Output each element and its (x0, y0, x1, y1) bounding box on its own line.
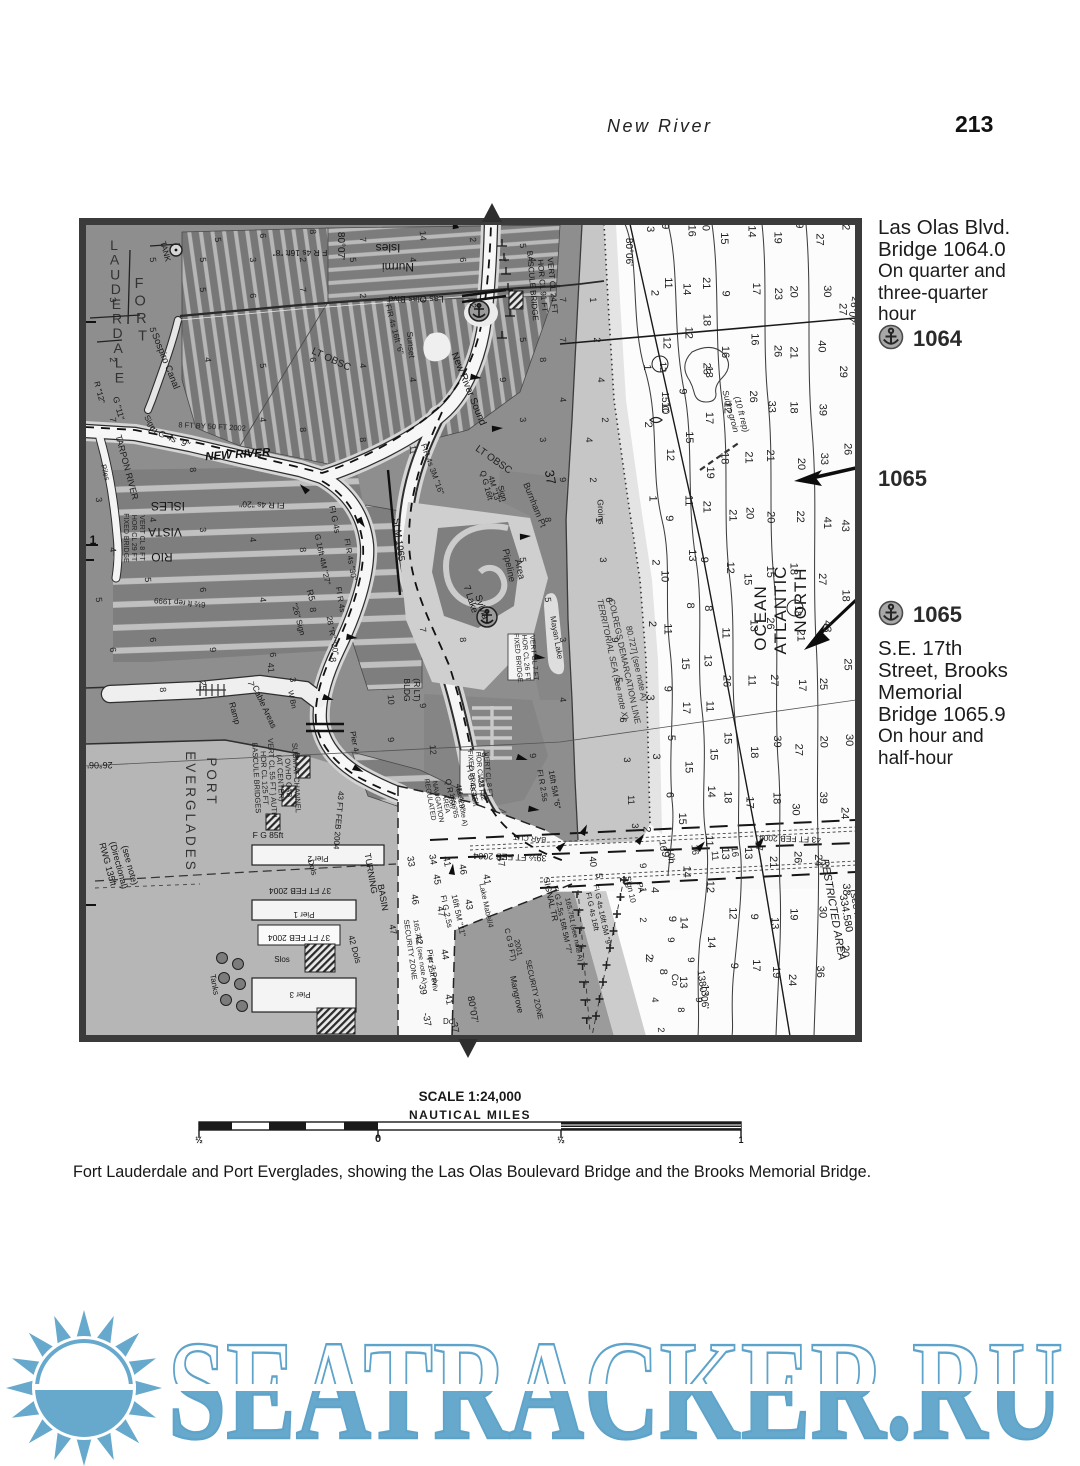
svg-text:4: 4 (558, 397, 568, 403)
svg-text:8: 8 (308, 229, 318, 235)
svg-text:5: 5 (148, 327, 158, 333)
svg-text:A: A (110, 252, 120, 268)
svg-text:2: 2 (641, 826, 653, 832)
svg-text:14: 14 (705, 936, 717, 948)
svg-text:11: 11 (683, 495, 695, 506)
svg-text:Las Olas Blvd: Las Olas Blvd (388, 294, 444, 304)
svg-text:27: 27 (837, 303, 849, 315)
svg-text:29: 29 (837, 366, 849, 378)
svg-text:44: 44 (438, 948, 451, 960)
svg-text:9: 9 (698, 557, 710, 563)
svg-text:16: 16 (657, 840, 669, 851)
svg-text:6: 6 (258, 233, 268, 239)
svg-text:11: 11 (703, 835, 715, 846)
svg-text:9: 9 (661, 686, 673, 692)
svg-text:7: 7 (418, 627, 428, 633)
svg-text:10: 10 (658, 570, 670, 582)
svg-text:4: 4 (358, 363, 368, 369)
svg-text:13: 13 (699, 984, 711, 996)
svg-text:21: 21 (794, 629, 806, 641)
svg-text:14: 14 (705, 786, 717, 798)
svg-text:7: 7 (558, 337, 568, 343)
svg-text:3: 3 (650, 754, 662, 760)
svg-text:5: 5 (198, 257, 208, 263)
svg-text:30: 30 (843, 734, 855, 746)
svg-text:7: 7 (298, 287, 308, 293)
svg-text:26°06': 26°06' (87, 760, 113, 770)
svg-text:18: 18 (788, 563, 800, 575)
svg-text:4: 4 (595, 377, 606, 383)
svg-text:6: 6 (148, 637, 158, 643)
svg-text:33: 33 (766, 401, 778, 413)
svg-text:39: 39 (817, 404, 829, 416)
svg-text:12: 12 (664, 449, 676, 461)
svg-text:27: 27 (813, 233, 825, 245)
svg-text:18: 18 (722, 791, 734, 803)
svg-text:12: 12 (724, 562, 736, 574)
svg-text:14: 14 (745, 225, 757, 237)
svg-text:37: 37 (448, 1021, 461, 1033)
svg-text:26: 26 (772, 345, 784, 357)
svg-text:1: 1 (587, 297, 598, 303)
svg-text:F: F (135, 276, 144, 292)
svg-text:3: 3 (538, 437, 548, 443)
svg-text:4: 4 (203, 357, 213, 363)
svg-text:39: 39 (416, 983, 429, 995)
svg-text:½: ½ (195, 1135, 203, 1145)
svg-text:20: 20 (764, 511, 776, 523)
svg-text:SCALE 1:24,000: SCALE 1:24,000 (419, 1089, 522, 1104)
svg-text:4: 4 (408, 377, 418, 383)
svg-text:47: 47 (494, 855, 507, 867)
svg-text:47: 47 (387, 924, 399, 936)
svg-text:23: 23 (772, 288, 784, 300)
svg-text:1: 1 (738, 1135, 743, 1145)
svg-text:2: 2 (642, 422, 654, 428)
svg-text:F G 85ft: F G 85ft (253, 830, 284, 840)
svg-text:5: 5 (258, 363, 268, 369)
svg-text:2: 2 (587, 477, 598, 483)
svg-text:PORT: PORT (204, 757, 219, 806)
svg-text:19: 19 (771, 231, 783, 243)
svg-text:26: 26 (792, 851, 804, 863)
svg-text:7: 7 (246, 681, 256, 687)
svg-text:80°07': 80°07' (335, 232, 346, 260)
svg-text:5: 5 (94, 597, 104, 603)
svg-text:5: 5 (143, 577, 153, 583)
svg-text:43: 43 (821, 620, 833, 632)
svg-text:3: 3 (108, 297, 118, 303)
svg-text:1: 1 (593, 517, 604, 523)
svg-text:12: 12 (704, 881, 716, 893)
svg-text:9: 9 (498, 377, 508, 383)
svg-text:18: 18 (718, 452, 730, 464)
svg-text:3: 3 (597, 557, 608, 563)
svg-text:21: 21 (767, 856, 779, 868)
svg-text:NAUTICAL MILES: NAUTICAL MILES (409, 1108, 531, 1122)
svg-text:18: 18 (840, 589, 852, 601)
svg-text:FI R 4s "20": FI R 4s "20" (239, 499, 285, 511)
svg-text:45: 45 (430, 873, 443, 885)
svg-text:16: 16 (729, 846, 741, 857)
svg-text:9: 9 (748, 914, 760, 920)
svg-text:3: 3 (94, 497, 104, 503)
svg-text:22: 22 (794, 510, 806, 522)
svg-text:FIXED BRIDGE: FIXED BRIDGE (122, 513, 129, 563)
svg-text:20: 20 (788, 285, 800, 297)
svg-text:80°06': 80°06' (623, 238, 634, 266)
svg-text:2: 2 (650, 559, 662, 565)
svg-text:R: R (136, 311, 146, 327)
svg-text:9: 9 (637, 863, 648, 869)
svg-text:15: 15 (764, 566, 776, 578)
svg-text:2: 2 (643, 957, 654, 963)
svg-text:9: 9 (728, 963, 740, 969)
svg-text:8: 8 (328, 657, 338, 663)
svg-text:13: 13 (703, 366, 715, 378)
svg-text:17: 17 (750, 283, 762, 295)
svg-text:2: 2 (637, 917, 648, 923)
svg-text:11: 11 (662, 623, 674, 634)
svg-text:O: O (135, 294, 146, 310)
svg-text:14: 14 (418, 230, 429, 241)
svg-text:RIO: RIO (151, 550, 172, 564)
svg-text:2: 2 (468, 303, 478, 309)
svg-text:15: 15 (683, 431, 695, 443)
svg-text:43: 43 (462, 898, 475, 910)
svg-text:VERT CL 8 FT: VERT CL 8 FT (138, 515, 145, 561)
svg-text:15: 15 (718, 232, 730, 244)
svg-text:8: 8 (458, 637, 468, 643)
svg-text:5: 5 (518, 243, 528, 249)
svg-text:11: 11 (745, 675, 757, 686)
svg-text:Pier 1: Pier 1 (293, 910, 314, 919)
svg-text:11: 11 (720, 627, 732, 638)
svg-text:1: 1 (646, 496, 658, 502)
svg-text:8: 8 (702, 605, 714, 611)
svg-text:3: 3 (558, 637, 568, 643)
svg-text:19: 19 (704, 466, 716, 478)
svg-text:26: 26 (721, 675, 733, 687)
svg-text:R: R (112, 311, 122, 327)
svg-text:17: 17 (743, 796, 755, 808)
svg-text:25: 25 (842, 658, 854, 670)
svg-text:11: 11 (625, 795, 636, 805)
svg-text:Co: Co (669, 974, 680, 987)
svg-text:7: 7 (108, 417, 118, 423)
svg-text:18: 18 (792, 606, 803, 617)
svg-text:13: 13 (769, 917, 781, 929)
svg-text:3: 3 (198, 527, 208, 533)
svg-text:D: D (111, 281, 121, 297)
svg-text:9: 9 (418, 703, 428, 709)
svg-text:21: 21 (700, 277, 712, 289)
svg-text:41: 41 (821, 517, 833, 529)
svg-text:15: 15 (676, 813, 688, 825)
svg-text:2: 2 (648, 290, 660, 296)
svg-text:2: 2 (591, 337, 602, 343)
svg-text:19: 19 (787, 908, 799, 920)
svg-text:L: L (110, 237, 118, 253)
svg-text:38: 38 (840, 883, 852, 895)
svg-text:25: 25 (198, 680, 209, 691)
svg-text:4: 4 (258, 417, 268, 423)
svg-text:18: 18 (788, 401, 800, 413)
svg-text:11: 11 (662, 277, 674, 288)
svg-text:27: 27 (793, 744, 805, 756)
svg-text:3: 3 (644, 695, 656, 701)
svg-text:30: 30 (821, 285, 833, 297)
svg-text:5: 5 (148, 257, 158, 263)
svg-text:41: 41 (440, 855, 453, 867)
svg-text:46: 46 (456, 863, 469, 875)
svg-text:16: 16 (749, 333, 761, 345)
svg-text:41: 41 (480, 873, 493, 885)
svg-text:37 FT FEB 2004: 37 FT FEB 2004 (268, 933, 330, 943)
svg-text:17: 17 (703, 412, 715, 424)
svg-text:12: 12 (683, 327, 695, 339)
svg-text:5: 5 (198, 287, 208, 293)
svg-text:3: 3 (288, 677, 298, 683)
svg-text:9: 9 (677, 388, 689, 394)
svg-text:27: 27 (816, 573, 828, 585)
svg-text:20: 20 (744, 507, 756, 519)
svg-text:6: 6 (198, 587, 208, 593)
svg-text:21: 21 (727, 509, 739, 521)
svg-text:13: 13 (702, 654, 714, 666)
svg-text:37 FT FEB 2004: 37 FT FEB 2004 (269, 886, 331, 896)
svg-text:3: 3 (629, 823, 640, 829)
svg-text:9: 9 (208, 647, 218, 653)
svg-text:16: 16 (719, 346, 731, 358)
svg-text:8: 8 (684, 603, 696, 609)
svg-text:20: 20 (795, 458, 807, 470)
svg-text:24: 24 (838, 807, 850, 819)
svg-text:8: 8 (657, 969, 669, 975)
svg-text:19: 19 (770, 966, 782, 978)
svg-text:16: 16 (689, 844, 701, 855)
svg-text:4: 4 (583, 437, 594, 443)
svg-text:7: 7 (498, 257, 508, 263)
svg-text:40: 40 (587, 856, 599, 867)
svg-text:33: 33 (818, 453, 830, 465)
svg-text:8: 8 (358, 437, 368, 443)
svg-text:13: 13 (748, 619, 760, 631)
svg-text:5: 5 (543, 597, 553, 603)
svg-text:1: 1 (641, 364, 653, 370)
svg-text:4: 4 (528, 257, 538, 263)
svg-text:5: 5 (518, 557, 528, 563)
svg-text:5: 5 (518, 337, 528, 343)
svg-text:9: 9 (693, 997, 704, 1003)
svg-text:17: 17 (753, 840, 765, 851)
svg-text:4: 4 (148, 517, 158, 523)
svg-text:HOR CL 29 FT: HOR CL 29 FT (130, 515, 137, 562)
svg-text:5: 5 (613, 677, 624, 683)
svg-text:24: 24 (786, 974, 798, 986)
svg-text:4: 4 (108, 547, 118, 553)
svg-text:40: 40 (816, 340, 828, 352)
svg-text:12: 12 (727, 907, 739, 919)
svg-text:6: 6 (458, 257, 468, 263)
svg-text:6: 6 (617, 717, 628, 723)
svg-text:15: 15 (679, 657, 691, 669)
svg-text:34: 34 (426, 853, 439, 865)
svg-text:8: 8 (298, 427, 308, 433)
svg-text:7: 7 (358, 237, 368, 243)
svg-text:8: 8 (158, 687, 168, 693)
svg-text:27: 27 (768, 674, 780, 686)
svg-text:14: 14 (681, 866, 693, 878)
svg-text:Pier 3: Pier 3 (289, 990, 310, 999)
svg-text:33: 33 (404, 855, 417, 867)
svg-text:1: 1 (637, 887, 648, 893)
svg-text:39: 39 (817, 792, 829, 804)
svg-text:3: 3 (518, 417, 528, 423)
svg-text:3: 3 (644, 226, 656, 232)
svg-text:D: D (113, 325, 123, 341)
svg-text:6: 6 (108, 647, 118, 653)
svg-text:42: 42 (412, 933, 425, 945)
svg-text:21: 21 (764, 449, 776, 461)
svg-text:14: 14 (678, 917, 690, 929)
svg-text:16: 16 (685, 225, 697, 237)
svg-text:30: 30 (816, 906, 828, 918)
svg-text:9: 9 (478, 752, 488, 758)
svg-text:11: 11 (408, 445, 419, 455)
svg-text:1: 1 (90, 533, 97, 547)
svg-text:2: 2 (655, 1027, 666, 1033)
svg-text:12: 12 (428, 744, 439, 755)
svg-text:2: 2 (108, 357, 118, 363)
svg-text:14: 14 (681, 283, 693, 295)
svg-text:9: 9 (528, 753, 538, 759)
svg-text:2: 2 (599, 417, 610, 423)
svg-text:2: 2 (358, 293, 368, 299)
svg-text:30: 30 (790, 803, 802, 815)
svg-text:5: 5 (213, 237, 223, 243)
svg-text:15: 15 (683, 761, 695, 773)
svg-text:7: 7 (558, 297, 568, 303)
svg-text:6: 6 (603, 597, 614, 603)
svg-text:3: 3 (621, 757, 632, 763)
svg-text:15 C: 15 C (659, 391, 670, 412)
svg-text:A: A (114, 340, 124, 356)
svg-text:20: 20 (839, 945, 851, 957)
svg-text:(R LT): (R LT) (412, 678, 422, 702)
svg-text:21: 21 (701, 501, 713, 513)
svg-text:8: 8 (188, 467, 198, 473)
svg-text:9: 9 (663, 515, 675, 521)
svg-text:12: 12 (661, 337, 673, 349)
svg-text:9: 9 (609, 637, 620, 643)
svg-text:8: 8 (543, 517, 553, 523)
svg-text:4: 4 (248, 537, 258, 543)
svg-text:21: 21 (787, 346, 799, 358)
svg-text:6: 6 (248, 293, 258, 299)
svg-text:2: 2 (617, 877, 628, 883)
svg-text:46: 46 (408, 893, 421, 905)
svg-text:21: 21 (743, 451, 755, 463)
svg-text:5: 5 (665, 735, 677, 741)
svg-text:8: 8 (538, 357, 548, 363)
svg-text:9: 9 (666, 916, 678, 922)
svg-text:½: ½ (557, 1135, 565, 1145)
svg-text:12: 12 (722, 402, 734, 414)
svg-text:15: 15 (742, 573, 754, 585)
svg-text:6: 6 (663, 792, 675, 798)
svg-text:43: 43 (839, 520, 851, 532)
svg-text:4: 4 (649, 997, 660, 1003)
svg-text:47: 47 (434, 905, 447, 917)
svg-text:20: 20 (817, 736, 829, 748)
svg-text:EVERGLADES: EVERGLADES (183, 751, 198, 873)
svg-text:10: 10 (386, 694, 397, 705)
svg-text:Isles: Isles (376, 241, 401, 255)
svg-text:4: 4 (649, 887, 661, 893)
svg-text:VISTA: VISTA (148, 525, 182, 539)
svg-text:8: 8 (675, 1007, 686, 1013)
svg-text:4: 4 (408, 257, 418, 263)
svg-text:8: 8 (308, 607, 318, 613)
svg-text:17: 17 (750, 959, 762, 971)
svg-text:9: 9 (720, 290, 732, 296)
svg-text:25: 25 (817, 678, 829, 690)
svg-text:4: 4 (258, 597, 268, 603)
svg-text:26: 26 (764, 617, 776, 629)
svg-text:13: 13 (742, 847, 754, 859)
svg-text:17: 17 (796, 679, 808, 691)
svg-text:0: 0 (375, 1133, 381, 1145)
svg-text:2: 2 (298, 257, 308, 263)
svg-text:37: 37 (542, 469, 559, 486)
svg-text:T: T (138, 329, 147, 345)
svg-text:5: 5 (348, 257, 358, 263)
svg-text:26: 26 (747, 390, 759, 402)
svg-text:2: 2 (468, 237, 478, 243)
svg-text:36: 36 (814, 966, 826, 978)
svg-text:BLDG: BLDG (402, 678, 412, 701)
svg-text:12: 12 (657, 362, 668, 373)
svg-text:ISLES: ISLES (151, 499, 185, 513)
svg-text:-37: -37 (420, 1012, 433, 1027)
svg-text:4: 4 (558, 697, 568, 703)
svg-text:6: 6 (268, 652, 278, 658)
svg-text:Slos: Slos (274, 955, 290, 964)
svg-text:24: 24 (812, 854, 824, 866)
svg-text:3: 3 (248, 257, 258, 263)
svg-text:6: 6 (308, 357, 318, 363)
svg-text:8: 8 (298, 547, 308, 553)
svg-text:18: 18 (748, 746, 760, 758)
svg-text:3: 3 (418, 297, 428, 303)
svg-text:U: U (110, 266, 120, 282)
svg-text:5: 5 (593, 873, 604, 879)
svg-text:2: 2 (646, 621, 658, 627)
svg-text:15: 15 (722, 732, 734, 744)
svg-text:11: 11 (709, 850, 721, 861)
svg-text:18: 18 (700, 314, 712, 326)
svg-text:9: 9 (685, 957, 696, 963)
svg-text:9: 9 (386, 737, 396, 743)
svg-text:18: 18 (770, 792, 782, 804)
svg-text:41: 41 (442, 993, 455, 1005)
svg-text:41: 41 (266, 662, 277, 673)
svg-text:15: 15 (708, 748, 720, 760)
svg-text:11: 11 (704, 701, 716, 712)
svg-text:13: 13 (686, 549, 698, 561)
svg-text:26: 26 (842, 443, 854, 455)
